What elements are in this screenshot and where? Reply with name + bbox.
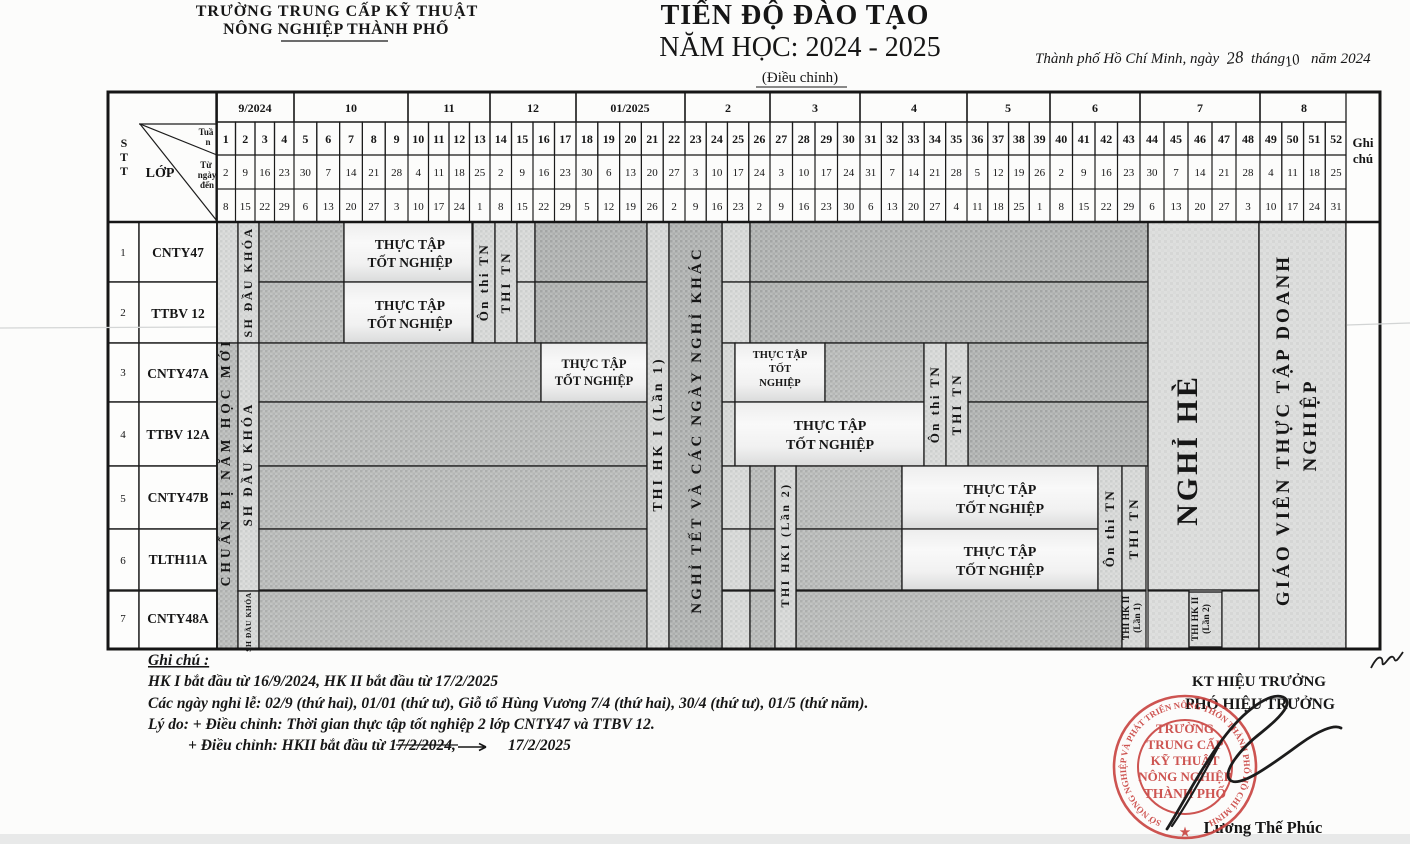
svg-text:Ôn thi TN: Ôn thi TN [1102,489,1117,567]
svg-text:CHUẨN BỊ NĂM HỌC MỚI: CHUẨN BỊ NĂM HỌC MỚI [218,338,233,587]
svg-text:13: 13 [474,132,486,146]
svg-text:43: 43 [1123,132,1135,146]
svg-text:TỐT NGHIỆP: TỐT NGHIỆP [956,499,1044,517]
svg-text:5: 5 [1005,101,1011,115]
svg-text:ngày: ngày [198,170,217,180]
svg-text:10: 10 [345,101,357,115]
svg-text:22: 22 [538,201,549,213]
svg-text:CNTY47B: CNTY47B [148,490,209,505]
svg-text:6: 6 [303,201,309,213]
svg-text:LỚP: LỚP [146,164,175,181]
svg-text:★: ★ [1180,825,1191,839]
svg-text:9: 9 [1081,167,1087,179]
svg-text:4: 4 [415,167,421,179]
svg-text:THỰC TẬP: THỰC TẬP [753,348,808,361]
svg-text:1: 1 [223,132,229,146]
svg-text:TRUNG CẤP: TRUNG CẤP [1147,737,1224,752]
svg-text:SH ĐẦU KHÓA: SH ĐẦU KHÓA [240,402,255,527]
svg-text:52: 52 [1330,132,1342,146]
svg-text:KT HIỆU TRƯỞNG: KT HIỆU TRƯỞNG [1192,673,1326,690]
svg-text:(Lần 1): (Lần 1) [1132,603,1143,633]
svg-text:30: 30 [581,167,593,179]
svg-text:11: 11 [443,101,454,115]
svg-text:24: 24 [711,132,723,146]
svg-text:12: 12 [603,201,614,213]
svg-text:15: 15 [240,201,252,213]
svg-text:THI TN: THI TN [1126,497,1141,560]
svg-text:7: 7 [1197,101,1203,115]
svg-text:45: 45 [1170,132,1182,146]
svg-text:2: 2 [725,101,731,115]
svg-text:21: 21 [929,167,940,179]
svg-text:13: 13 [1171,201,1183,213]
svg-text:9: 9 [519,167,525,179]
svg-text:chú: chú [1353,151,1373,166]
svg-text:3: 3 [1245,201,1251,213]
svg-text:16: 16 [1101,167,1113,179]
svg-text:25: 25 [474,167,486,179]
svg-text:TLTH11A: TLTH11A [149,552,208,567]
svg-text:21: 21 [368,167,379,179]
svg-text:21: 21 [646,132,658,146]
svg-text:16: 16 [259,167,271,179]
svg-text:13: 13 [323,201,335,213]
svg-text:33: 33 [908,132,920,146]
svg-text:TỐT NGHIỆP: TỐT NGHIỆP [555,373,634,388]
svg-text:TỐT NGHIỆP: TỐT NGHIỆP [368,316,453,331]
svg-text:11: 11 [433,132,444,146]
svg-text:10: 10 [798,167,810,179]
svg-text:7: 7 [120,613,126,625]
svg-text:THI HKI (Lần 2): THI HKI (Lần 2) [778,482,792,607]
svg-text:6: 6 [606,167,612,179]
svg-text:30: 30 [1147,167,1159,179]
svg-text:1: 1 [1037,201,1043,213]
svg-text:47: 47 [1218,132,1230,146]
svg-text:THỰC TẬP: THỰC TẬP [562,357,627,371]
svg-text:28: 28 [1243,167,1255,179]
svg-text:T: T [120,164,128,178]
svg-text:3: 3 [262,132,268,146]
svg-text:Từ: Từ [200,160,212,170]
svg-text:15: 15 [516,132,528,146]
svg-text:6: 6 [1149,201,1155,213]
svg-text:16: 16 [711,201,723,213]
svg-text:9: 9 [778,201,784,213]
svg-text:29: 29 [1123,201,1135,213]
svg-text:23: 23 [821,201,833,213]
svg-text:3: 3 [394,201,400,213]
svg-text:26: 26 [647,201,659,213]
svg-text:7: 7 [348,132,354,146]
svg-text:41: 41 [1078,132,1090,146]
svg-text:46: 46 [1194,132,1206,146]
svg-text:29: 29 [820,132,832,146]
svg-text:31: 31 [865,132,877,146]
svg-text:TTBV 12A: TTBV 12A [146,427,209,442]
svg-text:22: 22 [259,201,270,213]
svg-text:10: 10 [413,201,425,213]
svg-text:5: 5 [975,167,981,179]
svg-text:7: 7 [1173,167,1179,179]
svg-text:2: 2 [120,307,126,319]
svg-text:19: 19 [1013,167,1025,179]
svg-text:20: 20 [908,201,920,213]
svg-text:7: 7 [325,167,331,179]
svg-text:(Điều chỉnh): (Điều chỉnh) [762,70,838,86]
svg-text:3: 3 [778,167,784,179]
svg-text:37: 37 [992,132,1004,146]
svg-text:30: 30 [843,201,855,213]
svg-text:14: 14 [908,167,920,179]
svg-text:12: 12 [527,101,539,115]
svg-text:38: 38 [1013,132,1025,146]
svg-text:20: 20 [1195,201,1207,213]
svg-text:11: 11 [1287,167,1298,179]
svg-text:3: 3 [812,101,818,115]
svg-text:29: 29 [560,201,572,213]
svg-text:14: 14 [1195,167,1207,179]
svg-text:30: 30 [300,167,312,179]
svg-text:2: 2 [498,167,504,179]
svg-text:TỐT NGHIỆP: TỐT NGHIỆP [956,561,1044,579]
svg-text:15: 15 [1078,201,1090,213]
svg-text:THI TN: THI TN [498,251,513,314]
svg-text:30: 30 [843,132,855,146]
svg-text:Ghi: Ghi [1353,135,1374,150]
svg-text:31: 31 [865,167,876,179]
svg-text:10: 10 [711,167,723,179]
svg-text:24: 24 [1309,201,1321,213]
svg-text:9/2024: 9/2024 [238,101,271,115]
svg-text:tháng: tháng [1251,51,1286,67]
svg-text:(Lần 2): (Lần 2) [1201,604,1212,634]
svg-text:Ôn thi TN: Ôn thi TN [476,243,491,321]
svg-text:THỰC TẬP: THỰC TẬP [964,481,1037,498]
svg-text:5: 5 [584,201,590,213]
svg-text:Ôn thi TN: Ôn thi TN [927,365,942,443]
svg-text:42: 42 [1100,132,1112,146]
svg-text:TRƯỜNG: TRƯỜNG [1156,721,1214,736]
svg-text:1: 1 [120,247,126,259]
svg-text:THI HK II: THI HK II [1122,596,1132,641]
svg-text:15: 15 [517,201,529,213]
svg-text:9: 9 [693,201,699,213]
svg-text:16: 16 [798,201,810,213]
svg-text:24: 24 [754,167,766,179]
svg-text:NÔNG NGHIỆP: NÔNG NGHIỆP [1138,769,1232,784]
svg-text:6: 6 [120,555,126,567]
svg-text:Lý do: + Điều chỉnh: Thời gian: Lý do: + Điều chỉnh: Thời gian thực tập … [147,716,655,733]
svg-text:1: 1 [477,201,483,213]
svg-text:CNTY47: CNTY47 [152,245,204,260]
svg-text:36: 36 [971,132,983,146]
svg-text:TIẾN ĐỘ ĐÀO TẠO: TIẾN ĐỘ ĐÀO TẠO [661,0,930,31]
svg-text:26: 26 [753,132,765,146]
svg-text:11: 11 [972,201,983,213]
svg-text:5: 5 [120,493,126,505]
svg-text:23: 23 [279,167,291,179]
svg-text:13: 13 [625,167,637,179]
svg-text:28: 28 [1225,47,1244,68]
svg-text:14: 14 [346,167,358,179]
svg-text:2: 2 [1058,167,1064,179]
svg-text:T: T [120,150,128,164]
svg-text:01/2025: 01/2025 [610,101,649,115]
svg-text:19: 19 [603,132,615,146]
svg-text:26: 26 [1034,167,1046,179]
svg-text:10: 10 [412,132,424,146]
svg-text:28: 28 [391,167,403,179]
svg-text:THỰC TẬP: THỰC TẬP [794,417,867,434]
svg-text:2: 2 [671,201,677,213]
svg-text:5: 5 [302,132,308,146]
svg-text:TRƯỜNG TRUNG CẤP KỸ THUẬT: TRƯỜNG TRUNG CẤP KỸ THUẬT [196,0,479,20]
svg-text:17: 17 [733,167,745,179]
svg-text:12: 12 [453,132,465,146]
svg-text:THI HK I (Lần 1): THI HK I (Lần 1) [651,356,666,511]
svg-text:THI TN: THI TN [949,373,964,436]
svg-text:28: 28 [798,132,810,146]
svg-text:2: 2 [242,132,248,146]
svg-text:8: 8 [498,201,504,213]
svg-text:48: 48 [1242,132,1254,146]
svg-text:6: 6 [325,132,331,146]
svg-text:TỐT NGHIỆP: TỐT NGHIỆP [786,435,874,453]
svg-text:THỰC TẬP: THỰC TẬP [964,543,1037,560]
svg-text:34: 34 [929,132,941,146]
svg-text:25: 25 [732,132,744,146]
svg-text:6: 6 [1092,101,1098,115]
svg-text:4: 4 [120,429,126,441]
svg-text:49: 49 [1265,132,1277,146]
svg-text:17: 17 [1287,201,1299,213]
svg-text:39: 39 [1034,132,1046,146]
svg-text:50: 50 [1287,132,1299,146]
svg-text:23: 23 [1123,167,1135,179]
svg-text:21: 21 [1219,167,1230,179]
svg-text:SH ĐẦU KHÓA: SH ĐẦU KHÓA [240,226,255,337]
svg-text:NGHỈ HÈ: NGHỈ HÈ [1171,374,1204,526]
svg-text:Ghi chú :: Ghi chú : [148,652,209,669]
svg-text:18: 18 [1309,167,1321,179]
svg-text:32: 32 [886,132,898,146]
svg-text:11: 11 [434,167,445,179]
svg-text:6: 6 [868,201,874,213]
svg-text:Thành phố Hồ Chí Minh, ngày: Thành phố Hồ Chí Minh, ngày [1035,51,1220,67]
svg-text:20: 20 [346,201,358,213]
svg-text:16: 16 [538,132,550,146]
svg-text:8: 8 [1301,101,1307,115]
svg-text:NGHIỆP: NGHIỆP [759,376,801,389]
svg-text:3: 3 [693,167,699,179]
svg-text:27: 27 [368,201,380,213]
svg-text:n: n [205,137,210,147]
svg-text:SH ĐẦU KHÓA: SH ĐẦU KHÓA [243,592,253,652]
svg-text:8: 8 [223,201,229,213]
svg-text:4: 4 [911,101,917,115]
svg-text:22: 22 [1101,201,1112,213]
svg-text:24: 24 [843,167,855,179]
svg-text:17: 17 [559,132,571,146]
svg-text:THỰC TẬP: THỰC TẬP [375,237,445,252]
svg-text:14: 14 [495,132,507,146]
svg-text:2: 2 [223,167,229,179]
svg-text:20: 20 [625,132,637,146]
svg-text:8: 8 [371,132,377,146]
svg-text:18: 18 [454,167,466,179]
svg-text:27: 27 [669,167,681,179]
svg-text:22: 22 [668,132,680,146]
svg-text:3: 3 [120,367,126,379]
svg-text:đến: đến [200,180,214,190]
svg-text:17: 17 [433,201,445,213]
svg-text:27: 27 [929,201,941,213]
svg-text:18: 18 [993,201,1005,213]
svg-text:40: 40 [1055,132,1067,146]
svg-text:25: 25 [1331,167,1343,179]
svg-text:CNTY48A: CNTY48A [147,611,209,626]
svg-text:23: 23 [560,167,572,179]
svg-text:24: 24 [454,201,466,213]
svg-text:51: 51 [1308,132,1320,146]
svg-text:7: 7 [889,167,895,179]
svg-text:16: 16 [538,167,550,179]
svg-text:NGHIỆP: NGHIỆP [1299,379,1321,472]
svg-text:NĂM HỌC: 2024 - 2025: NĂM HỌC: 2024 - 2025 [659,32,941,63]
svg-text:Tuầ: Tuầ [199,127,214,137]
svg-text:9: 9 [242,167,248,179]
svg-text:10: 10 [1265,201,1277,213]
svg-text:18: 18 [581,132,593,146]
svg-text:2: 2 [757,201,763,213]
svg-text:28: 28 [951,167,963,179]
svg-text:27: 27 [775,132,787,146]
svg-text:17/2/2025: 17/2/2025 [508,737,571,754]
svg-text:CNTY47A: CNTY47A [147,366,209,381]
svg-text:TỐT NGHIỆP: TỐT NGHIỆP [368,255,453,270]
svg-text:17: 17 [821,167,833,179]
svg-text:31: 31 [1331,201,1342,213]
svg-text:20: 20 [647,167,659,179]
svg-text:NÔNG NGHIỆP THÀNH PHỐ: NÔNG NGHIỆP THÀNH PHỐ [223,18,449,38]
svg-text:THỰC TẬP: THỰC TẬP [375,298,445,313]
svg-text:44: 44 [1146,132,1158,146]
svg-text:S: S [121,136,128,150]
svg-text:12: 12 [993,167,1004,179]
svg-text:23: 23 [690,132,702,146]
svg-text:29: 29 [279,201,291,213]
svg-text:8: 8 [1058,201,1064,213]
svg-text:4: 4 [281,132,287,146]
svg-text:NGHỈ TẾT VÀ CÁC NGÀY NGHỈ KHÁC: NGHỈ TẾT VÀ CÁC NGÀY NGHỈ KHÁC [688,246,705,613]
svg-text:9: 9 [394,132,400,146]
svg-text:23: 23 [733,201,745,213]
svg-text:25: 25 [1013,201,1025,213]
svg-text:năm 2024: năm 2024 [1311,51,1371,67]
svg-text:13: 13 [887,201,899,213]
svg-text:HK I bắt đầu từ 16/9/2024, HK: HK I bắt đầu từ 16/9/2024, HK II bắt đầu… [147,673,498,690]
svg-text:TỐT: TỐT [769,362,791,375]
svg-text:GIÁO VIÊN THỰC TẬP DOANH: GIÁO VIÊN THỰC TẬP DOANH [1272,254,1294,606]
svg-text:35: 35 [950,132,962,146]
svg-text:THI HK II: THI HK II [1191,597,1201,642]
svg-text:Các ngày nghỉ lễ: 02/9 (thứ ha: Các ngày nghỉ lễ: 02/9 (thứ hai), 01/01 … [148,695,868,712]
svg-text:27: 27 [1219,201,1231,213]
svg-text:4: 4 [954,201,960,213]
svg-text:19: 19 [625,201,637,213]
svg-text:TTBV 12: TTBV 12 [151,306,205,321]
svg-text:4: 4 [1268,167,1274,179]
